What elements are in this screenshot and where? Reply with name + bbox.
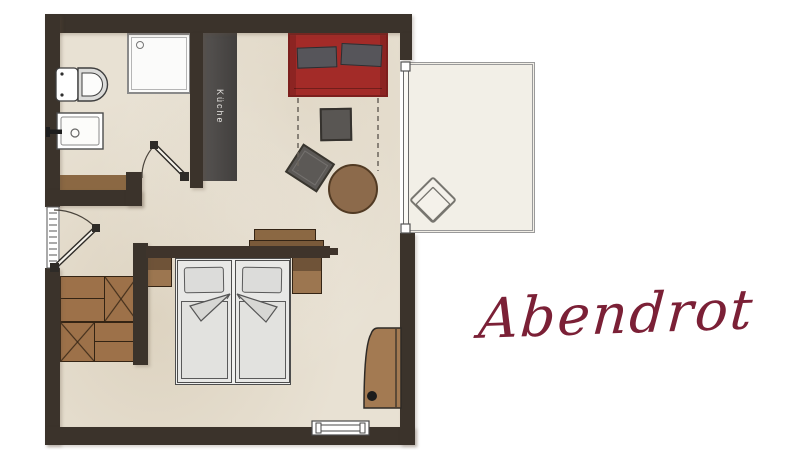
round-side-table — [328, 164, 378, 214]
sofa-seat-edge — [294, 88, 382, 89]
wall-right-top-stub — [400, 33, 412, 60]
apartment-name: Abendrot — [475, 277, 761, 371]
bed-headboard-lip — [328, 248, 338, 255]
wall-top — [45, 14, 412, 33]
kitchen-label: Küche — [215, 89, 225, 125]
sofa-armrest — [290, 35, 296, 95]
wardrobe-shelf-divider — [61, 298, 104, 299]
shower-tray — [127, 33, 191, 94]
balcony-floor — [406, 62, 535, 233]
bed-mattress-right — [235, 260, 290, 383]
coffee-table — [320, 108, 353, 142]
nightstand-top — [147, 258, 171, 270]
wall-bottom — [45, 427, 415, 445]
bed-mattress-left — [177, 260, 232, 383]
sofa-cushion-right — [340, 43, 382, 67]
nightstand-top — [293, 257, 321, 271]
wardrobe-lower — [60, 322, 143, 362]
bed-pillow — [184, 267, 224, 294]
sofa-cushion-left — [297, 46, 338, 68]
wall-bathroom-kitchen — [190, 33, 203, 188]
wall-left-lower — [45, 268, 60, 445]
stool-inner-border — [292, 150, 329, 185]
wall-left-upper — [45, 14, 60, 207]
wardrobe-shelf-cell — [61, 277, 105, 321]
bed-blanket — [239, 301, 286, 379]
wall-right — [400, 233, 415, 445]
wardrobe-x-cell — [61, 323, 95, 361]
kitchen-counter: Küche — [203, 33, 237, 181]
wall-bedroom-partition — [133, 243, 148, 365]
bed-headboard — [146, 246, 330, 258]
floor-plan-page: Küche — [0, 0, 800, 450]
shower-drain-icon — [136, 41, 144, 49]
wall-bathroom-stub — [126, 172, 142, 206]
bed-blanket — [181, 301, 228, 379]
bed-pillow — [242, 267, 282, 294]
nightstand-left — [146, 257, 172, 287]
nightstand-right — [292, 256, 322, 294]
wardrobe-upper — [60, 276, 138, 322]
